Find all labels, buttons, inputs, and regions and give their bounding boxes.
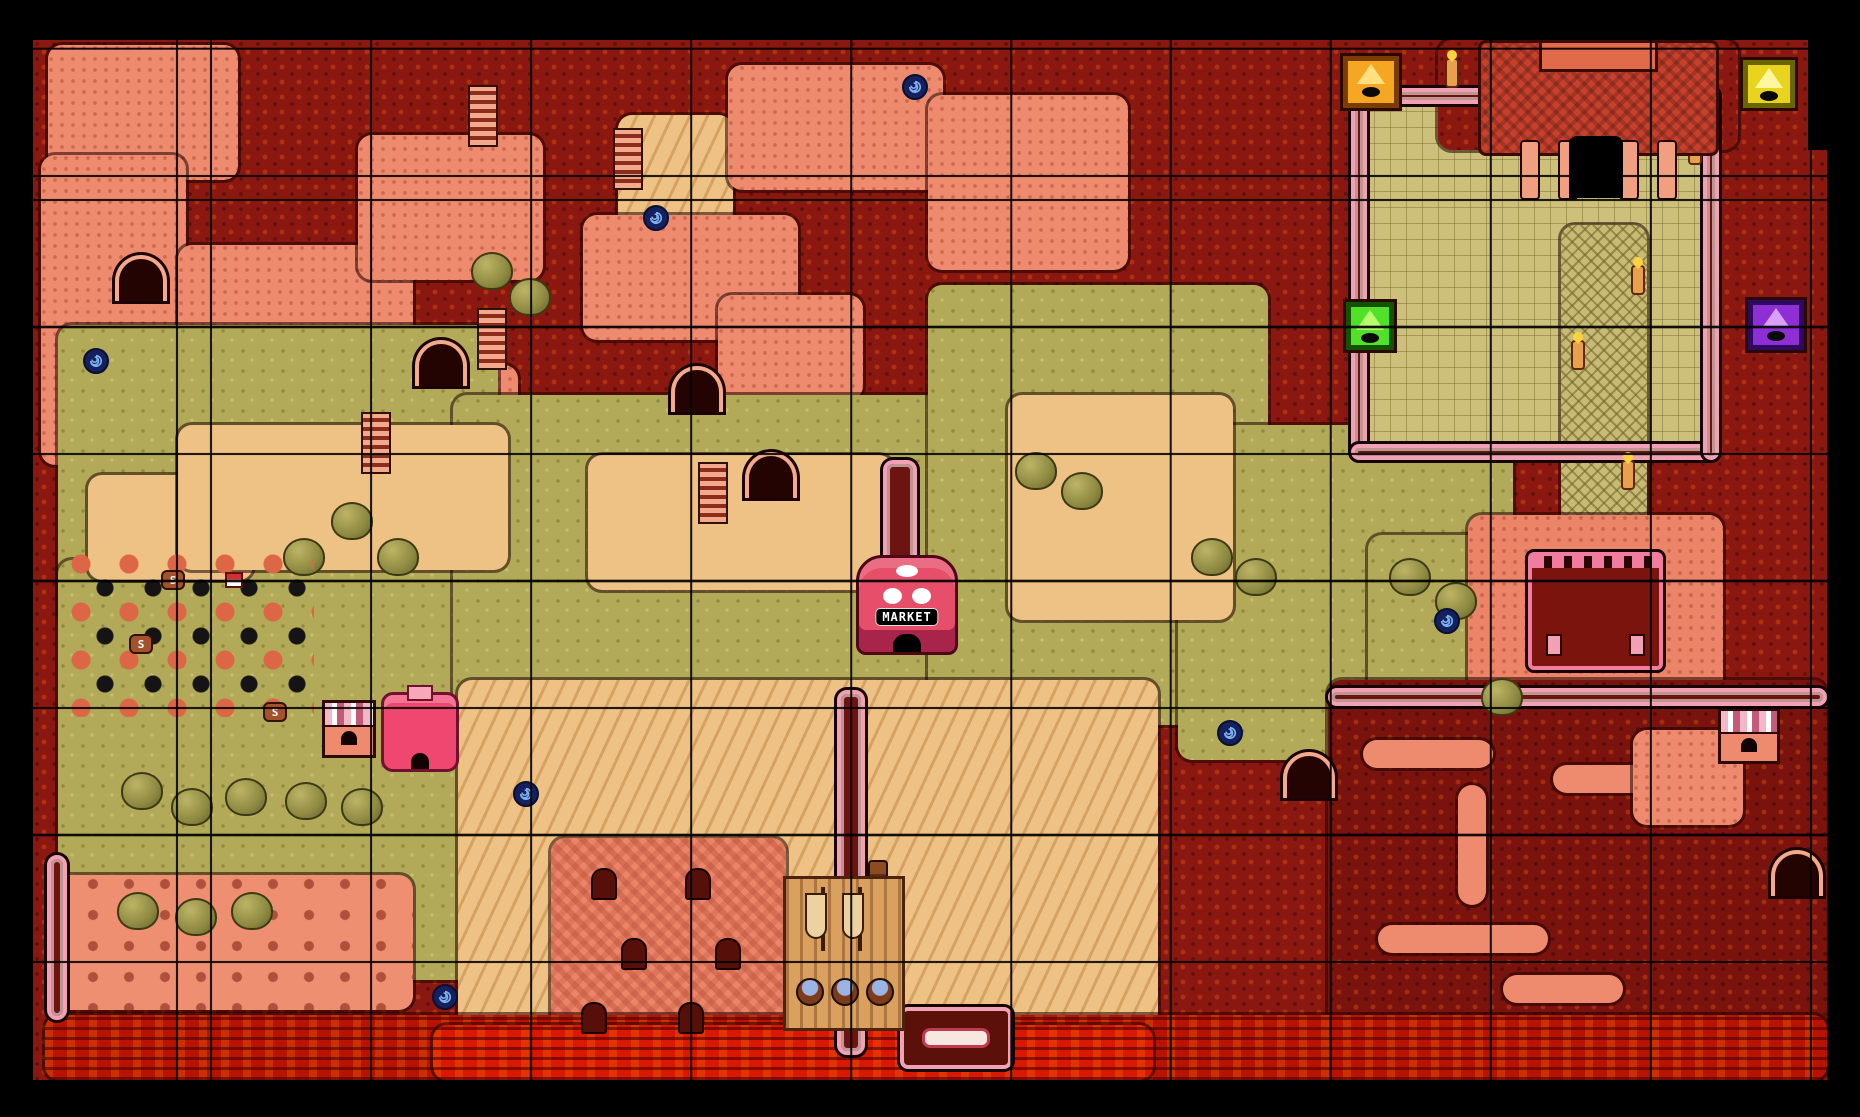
temple-column — [1657, 140, 1677, 200]
region-tan-mid-1 — [178, 425, 508, 570]
tree-icon — [121, 772, 163, 810]
tombstone-icon — [591, 868, 617, 900]
region-beach-left — [48, 875, 413, 1010]
marker-emblem-icon — [1362, 87, 1380, 97]
shop-door — [1741, 738, 1757, 752]
region-maze-path-6 — [1503, 975, 1623, 1003]
shop-awning — [1721, 711, 1777, 734]
region-ruins-salmon-7 — [928, 95, 1128, 270]
tree-icon — [331, 502, 373, 540]
ship-sail — [842, 893, 864, 939]
cave-entrance-icon[interactable] — [671, 366, 723, 412]
temple-doorway — [1569, 136, 1623, 198]
portal-spiral-icon[interactable] — [432, 984, 458, 1010]
tree-icon — [1191, 538, 1233, 576]
cave-entrance-icon[interactable] — [1771, 850, 1823, 896]
seed-barrel-icon: S — [129, 634, 153, 654]
cave-entrance-icon[interactable] — [1283, 752, 1335, 798]
shop-striped-awning[interactable] — [322, 700, 376, 758]
tombstone-icon — [678, 1002, 704, 1034]
shop-door — [341, 731, 357, 745]
tree-icon — [471, 252, 513, 290]
cave-entrance-icon[interactable] — [115, 255, 167, 301]
torch-icon — [1631, 265, 1645, 295]
tree-icon — [175, 898, 217, 936]
dungeon-marker-orange[interactable] — [1343, 56, 1399, 108]
region-tan-mid-2 — [588, 455, 893, 590]
temple-roof — [1539, 40, 1658, 72]
market-sign: MARKET — [875, 608, 938, 626]
spiral-glyph — [517, 785, 535, 803]
dungeon-marker-purple[interactable] — [1748, 300, 1804, 350]
region-ruins-salmon-9 — [718, 295, 863, 400]
wall-segment — [1351, 88, 1367, 460]
market-window — [912, 588, 931, 604]
lava-platform — [900, 1007, 1012, 1069]
region-tan-right — [1008, 395, 1233, 620]
spiral-glyph — [906, 78, 924, 96]
tree-icon — [1389, 558, 1431, 596]
marker-emblem-icon — [1760, 91, 1778, 101]
ship-kegs — [796, 978, 894, 1006]
wall-segment — [47, 855, 67, 1020]
region-ruins-salmon-4 — [358, 135, 543, 280]
cave-entrance-icon[interactable] — [745, 452, 797, 498]
marker-pyramid-icon — [1357, 64, 1385, 84]
dungeon-marker-yellow[interactable] — [1743, 60, 1795, 108]
tombstone-icon — [685, 868, 711, 900]
tree-icon — [1481, 678, 1523, 716]
wall-segment — [1351, 444, 1719, 460]
cave-entrance-icon[interactable] — [415, 340, 467, 386]
portal-spiral-icon[interactable] — [513, 781, 539, 807]
market-roof-spot — [896, 565, 918, 577]
wall-segment — [1328, 688, 1827, 706]
temple-column — [1520, 140, 1540, 200]
shop-chimney — [407, 685, 433, 701]
palace-building[interactable] — [1528, 552, 1663, 670]
tree-icon — [171, 788, 213, 826]
tombstone-icon — [581, 1002, 607, 1034]
tree-icon — [1235, 558, 1277, 596]
portal-spiral-icon[interactable] — [1217, 720, 1243, 746]
staircase-icon[interactable] — [468, 85, 498, 147]
torch-icon — [1571, 340, 1585, 370]
ship-sail — [805, 893, 827, 939]
market-building[interactable]: MARKET — [856, 555, 958, 655]
tree-icon — [117, 892, 159, 930]
torch-icon — [1621, 460, 1635, 490]
palace-window — [1546, 634, 1562, 656]
seed-barrel-icon: S — [161, 570, 185, 590]
tree-icon — [509, 278, 551, 316]
palace-window — [1629, 634, 1645, 656]
portal-spiral-icon[interactable] — [83, 348, 109, 374]
marker-emblem-icon — [1361, 333, 1379, 343]
overworld-map[interactable]: SSSMARKET — [33, 40, 1827, 1080]
farm-bush-patch — [69, 552, 314, 717]
temple-building[interactable] — [1478, 40, 1713, 230]
staircase-icon[interactable] — [361, 412, 391, 474]
tree-icon — [231, 892, 273, 930]
tree-icon — [341, 788, 383, 826]
spiral-glyph — [1438, 612, 1456, 630]
torch-icon — [1445, 58, 1459, 88]
portal-spiral-icon[interactable] — [902, 74, 928, 100]
tombstone-icon — [715, 938, 741, 970]
spiral-glyph — [647, 209, 665, 227]
palace-battlements — [1532, 556, 1659, 568]
marker-emblem-icon — [1767, 331, 1785, 341]
staircase-icon[interactable] — [613, 128, 643, 190]
market-window — [883, 588, 902, 604]
shop-door — [411, 753, 429, 769]
region-maze-path-4 — [1378, 925, 1548, 953]
region-maze-path-1 — [1363, 740, 1493, 768]
marker-pyramid-icon — [1356, 310, 1384, 330]
tree-icon — [1015, 452, 1057, 490]
spiral-glyph — [1221, 724, 1239, 742]
tree-icon — [225, 778, 267, 816]
shop-awning — [325, 703, 373, 727]
tiny-house-icon — [225, 572, 243, 588]
shipyard-raft[interactable] — [783, 876, 905, 1031]
portal-spiral-icon[interactable] — [1434, 608, 1460, 634]
screen: SSSMARKET — [0, 0, 1860, 1117]
keg-icon — [866, 978, 894, 1006]
tree-icon — [1061, 472, 1103, 510]
marker-pyramid-icon — [1755, 68, 1783, 88]
region-maze-path-2 — [1458, 785, 1486, 905]
map-corner-cutout — [1808, 40, 1827, 150]
tree-icon — [377, 538, 419, 576]
market-door — [893, 634, 921, 652]
marker-pyramid-icon — [1762, 308, 1790, 328]
tree-icon — [285, 782, 327, 820]
keg-icon — [831, 978, 859, 1006]
region-lava-bright — [433, 1025, 1153, 1080]
staircase-icon[interactable] — [698, 462, 728, 524]
shop-striped-awning[interactable] — [1718, 708, 1780, 764]
staircase-icon[interactable] — [477, 308, 507, 370]
portal-spiral-icon[interactable] — [643, 205, 669, 231]
shop-pink-building[interactable] — [381, 692, 459, 772]
keg-icon — [796, 978, 824, 1006]
dungeon-marker-green[interactable] — [1346, 302, 1394, 350]
seed-barrel-icon: S — [263, 702, 287, 722]
spiral-glyph — [436, 988, 454, 1006]
tombstone-icon — [621, 938, 647, 970]
spiral-glyph — [87, 352, 105, 370]
